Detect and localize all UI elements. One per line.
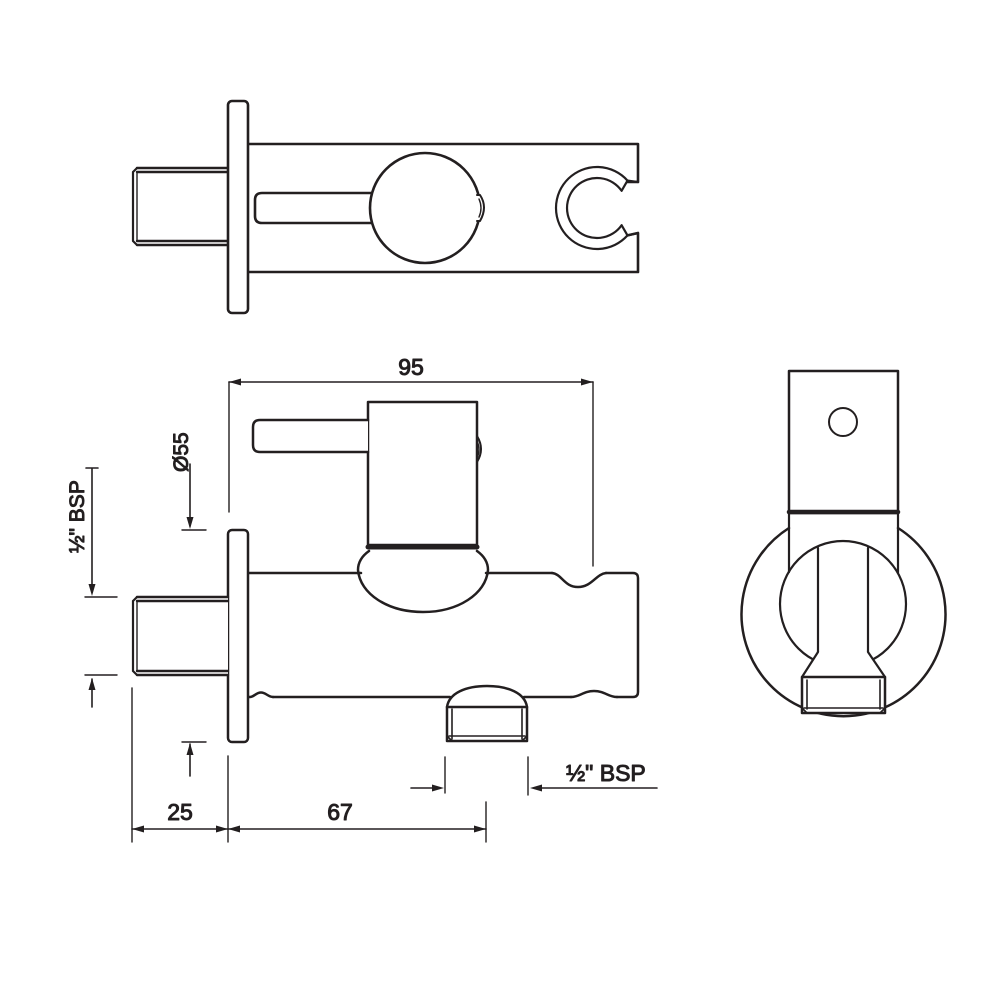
screw-bump-top <box>477 195 484 221</box>
wall-flange-front <box>228 530 248 742</box>
outlet-side <box>802 652 885 713</box>
technical-drawing-page: 95 Ø55 ½" BSP 25 67 ½" BSP <box>0 0 1000 1000</box>
dimension-label-outlet-distance: 67 <box>327 799 353 825</box>
valve-sphere-side <box>780 541 906 667</box>
dimension-label-overall-depth: 95 <box>398 354 424 380</box>
dimension-label-outlet-thread: ½" BSP <box>566 760 646 786</box>
wall-flange-top <box>228 101 248 313</box>
handle-ball-top <box>370 153 480 263</box>
handle-plate-side <box>789 371 898 513</box>
angle-valve-technical-drawing: 95 Ø55 ½" BSP 25 67 ½" BSP <box>0 0 1000 1000</box>
inlet-stem-top <box>133 168 228 245</box>
dimension-inlet-thread <box>85 468 117 707</box>
outlet-front <box>447 686 527 741</box>
cartridge-body-front <box>368 402 477 545</box>
handle-hole-side <box>829 408 857 436</box>
top-view <box>133 101 638 313</box>
inlet-stem-front <box>133 597 228 675</box>
dimension-label-flange-diameter: Ø55 <box>170 432 193 472</box>
dimension-label-wall-clearance: 25 <box>167 799 193 825</box>
side-view <box>742 371 947 716</box>
front-view: 95 Ø55 ½" BSP 25 67 ½" BSP <box>66 354 657 842</box>
dimension-label-inlet-thread: ½" BSP <box>66 480 89 553</box>
